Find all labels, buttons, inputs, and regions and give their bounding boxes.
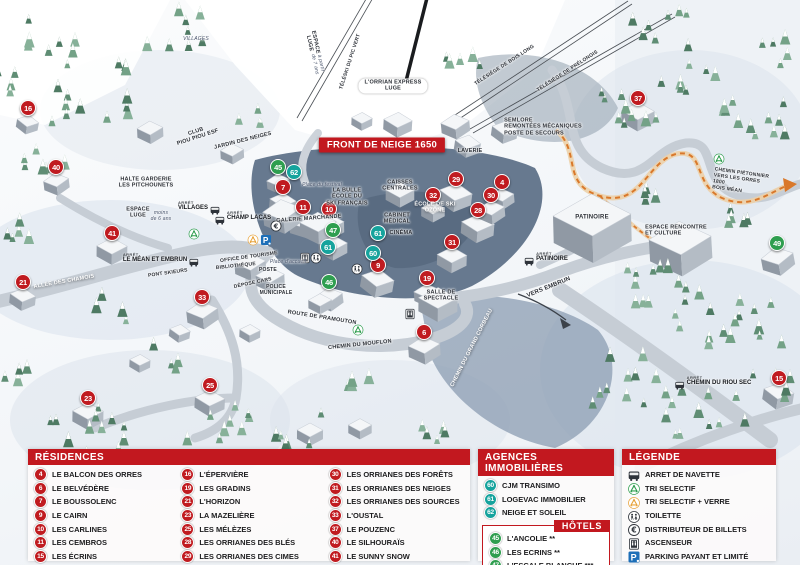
legend-item-label: LES ORRIANES DES SOURCES [347, 497, 460, 506]
legend-item: 33L'OUSTAL [329, 509, 470, 523]
legend-item-label: NEIGE ET SOLEIL [502, 508, 566, 517]
map-marker-6: 6 [416, 324, 432, 340]
legend-item-label: LES ORRIANES DES FORÊTS [347, 470, 453, 479]
map-marker-41: 41 [104, 225, 120, 241]
map-marker-7: 7 [275, 179, 291, 195]
map-marker-62: 62 [286, 164, 302, 180]
map-marker-49: 49 [769, 235, 785, 251]
legend-item-label: LE BOUSSOLENC [52, 497, 117, 506]
bus-stop-name: LE MÉAN ET EMBRUN [123, 257, 187, 263]
map-marker-16: 16 [20, 100, 36, 116]
legend-item: TRI SELECTIF + VERRE [628, 495, 776, 509]
legend-item-label: LE BALCON DES ORRES [52, 470, 142, 479]
recycle-green-icon [628, 482, 640, 494]
marker-badge: 37 [329, 523, 342, 536]
map-marker-10: 10 [321, 201, 337, 217]
toilet-icon [311, 251, 322, 262]
legend-item: 61LOGEVAC IMMOBILIER [484, 493, 614, 507]
marker-badge: 7 [34, 495, 47, 508]
legend-item-label: L'OUSTAL [347, 511, 384, 520]
legend-item: 7LE BOUSSOLENC [34, 495, 175, 509]
front-de-neige-banner: FRONT DE NEIGE 1650 [319, 138, 445, 153]
parking-icon: P [261, 233, 272, 244]
parking-icon: P [628, 550, 640, 562]
map-marker-47: 47 [325, 222, 341, 238]
marker-badge: 33 [329, 509, 342, 522]
residences-header: RÉSIDENCES [28, 449, 470, 465]
legend-item-label: TRI SELECTIF + VERRE [645, 497, 730, 506]
marker-badge: 9 [34, 509, 47, 522]
legend-item: 41LE SUNNY SNOW [329, 550, 470, 564]
marker-badge: 11 [34, 536, 47, 549]
legend-item: 10LES CARLINES [34, 522, 175, 536]
residences-panel: RÉSIDENCES 4LE BALCON DES ORRES6LE BELVÉ… [28, 449, 470, 561]
marker-badge: 29 [181, 550, 194, 563]
bus-stop-patinoire: ARRÊTPATINOIRE [524, 252, 568, 262]
map-marker-45: 45 [270, 159, 286, 175]
marker-badge: 40 [329, 536, 342, 549]
legende-header: LÉGENDE [622, 449, 776, 465]
marker-badge: 32 [329, 495, 342, 508]
bus-stop-chemin-du-riou-sec: ARRÊTCHEMIN DU RIOU SEC [675, 376, 752, 386]
legend-item: TOILETTE [628, 509, 776, 523]
elevator-icon [300, 251, 311, 262]
bus-stop-name: CHEMIN DU RIOU SEC [687, 380, 752, 386]
agences-header: AGENCES IMMOBILIÈRES [478, 449, 614, 476]
marker-badge: 23 [181, 509, 194, 522]
agences-panel: AGENCES IMMOBILIÈRES 60CJM TRANSIMO61LOG… [478, 449, 614, 561]
legend-item-label: ARRET DE NAVETTE [645, 470, 720, 479]
elevator-icon [628, 537, 640, 549]
legend-item: 9LE CAIRN [34, 509, 175, 523]
legend-item-label: DISTRIBUTEUR DE BILLETS [645, 525, 747, 534]
legend-item: €DISTRIBUTEUR DE BILLETS [628, 522, 776, 536]
recycle-green-icon [353, 323, 364, 334]
svg-text:€: € [273, 222, 279, 230]
marker-badge: 30 [329, 468, 342, 481]
legend-item-label: LE BELVÉDÈRE [52, 484, 109, 493]
map-marker-33: 33 [194, 289, 210, 305]
legend-item: 29LES ORRIANES DES CIMES [181, 550, 322, 564]
legend-item: 62NEIGE ET SOLEIL [484, 506, 614, 520]
legend-item-label: L'ESCALE BLANCHE *** [507, 561, 593, 565]
toilet-icon [352, 262, 363, 273]
legend-item: 19LES GRADINS [181, 482, 322, 496]
legend-item: 28LES ORRIANES DES BLÉS [181, 536, 322, 550]
map-marker-29: 29 [448, 171, 464, 187]
legend-item-label: LE CAIRN [52, 511, 87, 520]
legend-item-label: LES MÉLÈZES [199, 525, 251, 534]
map-marker-60: 60 [365, 245, 381, 261]
toilet-icon [628, 510, 640, 522]
legend-item: 40LE SILHOURAÏS [329, 536, 470, 550]
bus-stop-champ-lacas: ARRÊTCHAMP LACAS [215, 211, 271, 221]
legend-item-label: LE SUNNY SNOW [347, 552, 410, 561]
residences-columns: 4LE BALCON DES ORRES6LE BELVÉDÈRE7LE BOU… [28, 465, 470, 563]
recycle-green-icon [189, 227, 200, 238]
legend-item: 23LA MAZELIÈRE [181, 509, 322, 523]
marker-badge: 10 [34, 523, 47, 536]
bus-stop-name: CHAMP LACAS [227, 215, 271, 221]
legend-item-label: LA MAZELIÈRE [199, 511, 254, 520]
legend-item-label: LES ORRIANES DES NEIGES [347, 484, 451, 493]
marker-badge: 45 [489, 532, 502, 545]
legend-item-label: L'ANCOLIE ** [507, 534, 555, 543]
hotels-box: HÔTELS 45L'ANCOLIE **46LES ECRINS **47L'… [482, 525, 610, 565]
bus-icon [524, 253, 534, 262]
legend-item: 32LES ORRIANES DES SOURCES [329, 495, 470, 509]
bus-icon [675, 377, 685, 386]
marker-badge: 28 [181, 536, 194, 549]
marker-badge: 15 [34, 550, 47, 563]
marker-badge: 41 [329, 550, 342, 563]
marker-badge: 21 [181, 495, 194, 508]
legend-item-label: LE SILHOURAÏS [347, 538, 405, 547]
bus-icon [210, 202, 220, 211]
legend-item: ASCENSEUR [628, 536, 776, 550]
bus-stop-le-m-an-et-embrun: ARRÊTLE MÉAN ET EMBRUN [123, 253, 199, 263]
map-marker-15: 15 [771, 370, 787, 386]
marker-badge: 25 [181, 523, 194, 536]
map-marker-31: 31 [444, 234, 460, 250]
legend-item-label: L'HORIZON [199, 497, 240, 506]
legend-item-label: PARKING PAYANT ET LIMITÉ [645, 552, 748, 561]
resort-map: 1640412123253371110293228319196430371545… [0, 0, 800, 565]
map-marker-11: 11 [295, 199, 311, 215]
legend-item-label: LES CEMBROS [52, 538, 107, 547]
legend-item: 47L'ESCALE BLANCHE *** [489, 559, 609, 565]
marker-badge: 31 [329, 482, 342, 495]
bus-icon [628, 469, 640, 481]
bus-stop-villages: ARRÊTVILLAGES [178, 201, 220, 211]
map-marker-37: 37 [630, 90, 646, 106]
legend-item-label: ASCENSEUR [645, 538, 692, 547]
legend-item: 15LES ÉCRINS [34, 550, 175, 564]
legend-item-label: L'ÉPERVIÈRE [199, 470, 248, 479]
marker-badge: 47 [489, 559, 502, 565]
legend-item-label: LES ORRIANES DES BLÉS [199, 538, 295, 547]
map-marker-28: 28 [470, 202, 486, 218]
map-marker-32: 32 [425, 187, 441, 203]
legende-panel: LÉGENDE ARRET DE NAVETTETRI SELECTIFTRI … [622, 449, 776, 561]
map-marker-46: 46 [321, 274, 337, 290]
bus-icon [215, 212, 225, 221]
legend-item: 16L'ÉPERVIÈRE [181, 468, 322, 482]
map-marker-40: 40 [48, 159, 64, 175]
marker-badge: 16 [181, 468, 194, 481]
legend: RÉSIDENCES 4LE BALCON DES ORRES6LE BELVÉ… [28, 449, 776, 561]
legend-item: 46LES ECRINS ** [489, 545, 609, 559]
legend-item-label: CJM TRANSIMO [502, 481, 560, 490]
legend-item: 31LES ORRIANES DES NEIGES [329, 482, 470, 496]
bus-stop-name: PATINOIRE [536, 256, 568, 262]
legend-item-label: LES ORRIANES DES CIMES [199, 552, 299, 561]
hotels-header: HÔTELS [554, 520, 610, 532]
legend-item: 60CJM TRANSIMO [484, 479, 614, 493]
marker-badge: 46 [489, 546, 502, 559]
marker-badge: 60 [484, 479, 497, 492]
bus-icon [189, 254, 199, 263]
euro-icon: € [271, 219, 282, 230]
map-marker-25: 25 [202, 377, 218, 393]
marker-badge: 4 [34, 468, 47, 481]
legend-item-label: LOGEVAC IMMOBILIER [502, 495, 586, 504]
legend-item-label: TOILETTE [645, 511, 681, 520]
legend-item-label: LE POUZENC [347, 525, 395, 534]
marker-badge: 62 [484, 506, 497, 519]
legend-item: TRI SELECTIF [628, 482, 776, 496]
map-marker-61: 61 [320, 239, 336, 255]
recycle-yellow-icon [628, 496, 640, 508]
map-marker-61: 61 [370, 225, 386, 241]
legend-item: 37LE POUZENC [329, 522, 470, 536]
bus-stop-name: VILLAGES [178, 205, 208, 211]
legend-item: 11LES CEMBROS [34, 536, 175, 550]
legend-item: PPARKING PAYANT ET LIMITÉ [628, 550, 776, 564]
svg-text:€: € [630, 526, 636, 535]
legend-item: 4LE BALCON DES ORRES [34, 468, 175, 482]
map-marker-23: 23 [80, 390, 96, 406]
map-marker-4: 4 [494, 174, 510, 190]
legend-item-label: TRI SELECTIF [645, 484, 695, 493]
recycle-green-icon [714, 152, 725, 163]
marker-badge: 6 [34, 482, 47, 495]
marker-badge: 19 [181, 482, 194, 495]
map-marker-19: 19 [419, 270, 435, 286]
recycle-yellow-icon [248, 233, 259, 244]
legend-item: 30LES ORRIANES DES FORÊTS [329, 468, 470, 482]
map-marker-21: 21 [15, 274, 31, 290]
legend-item-label: LES ÉCRINS [52, 552, 97, 561]
legend-item: 25LES MÉLÈZES [181, 522, 322, 536]
map-marker-30: 30 [483, 187, 499, 203]
marker-badge: 61 [484, 493, 497, 506]
svg-text:P: P [631, 553, 637, 563]
legend-item: 45L'ANCOLIE ** [489, 532, 609, 546]
legend-item: 21L'HORIZON [181, 495, 322, 509]
legend-item: ARRET DE NAVETTE [628, 468, 776, 482]
legend-item-label: LES CARLINES [52, 525, 107, 534]
legend-item-label: LES GRADINS [199, 484, 250, 493]
legend-item: 6LE BELVÉDÈRE [34, 482, 175, 496]
svg-text:P: P [263, 236, 269, 245]
legend-item-label: LES ECRINS ** [507, 548, 560, 557]
elevator-icon [405, 307, 416, 318]
euro-icon: € [628, 523, 640, 535]
